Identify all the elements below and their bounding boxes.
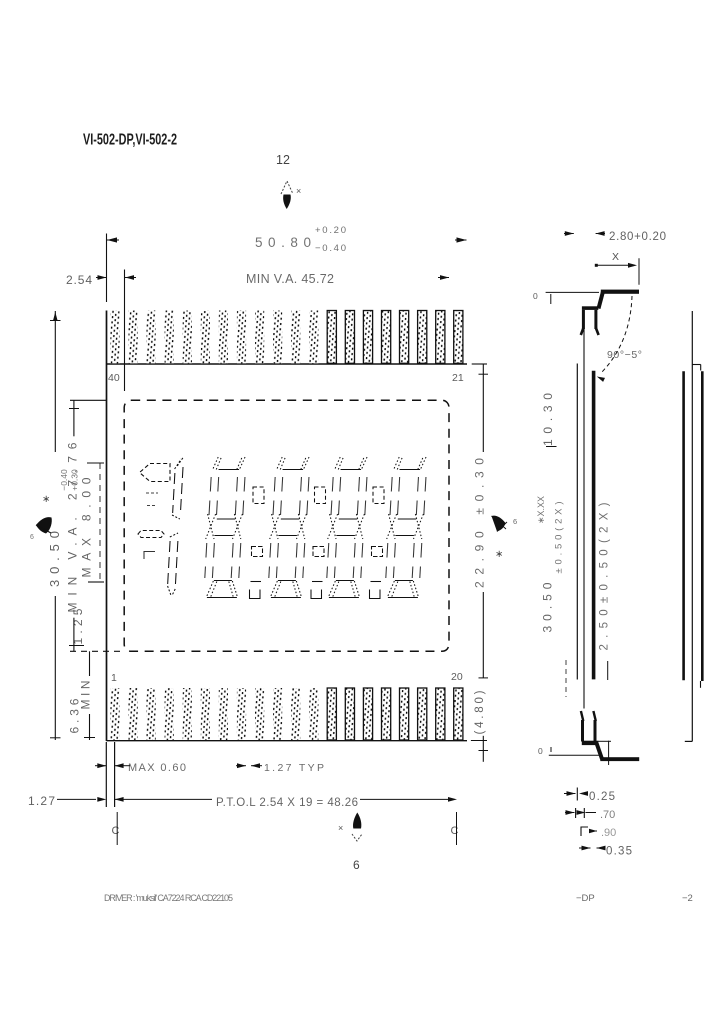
svg-text:+0.20: +0.20: [315, 225, 346, 236]
svg-text:2.54: 2.54: [66, 273, 92, 287]
svg-text:6.36: 6.36: [68, 698, 82, 733]
svg-text:MIN V.A. 45.72: MIN V.A. 45.72: [246, 272, 334, 286]
svg-text:0.35: 0.35: [606, 846, 632, 858]
svg-text:10.30: 10.30: [541, 393, 555, 446]
svg-text:−DP: −DP: [576, 893, 595, 904]
svg-text:1.25: 1.25: [71, 608, 85, 644]
svg-text:C: C: [112, 825, 120, 837]
svg-text:40: 40: [108, 372, 120, 384]
svg-text:1: 1: [111, 672, 117, 684]
svg-text:X: X: [612, 251, 619, 263]
svg-text:P.T.O.L 2.54 X 19 = 48.26: P.T.O.L 2.54 X 19 = 48.26: [216, 797, 358, 809]
svg-text:0: 0: [538, 746, 543, 756]
svg-text:MAX 0.60: MAX 0.60: [128, 762, 186, 774]
svg-text:0.25: 0.25: [589, 791, 615, 803]
svg-text:2.50±0.50(2X): 2.50±0.50(2X): [599, 502, 611, 650]
svg-text:C: C: [451, 825, 459, 837]
svg-text:30.50: 30.50: [47, 531, 62, 587]
svg-text:MIN V.A. 27.76: MIN V.A. 27.76: [66, 442, 80, 612]
svg-text:MAX 8.00: MAX 8.00: [80, 477, 94, 577]
svg-text:0: 0: [533, 291, 538, 301]
svg-text:6: 6: [30, 534, 34, 541]
svg-text:1.27: 1.27: [28, 794, 55, 808]
svg-text:∗: ∗: [495, 549, 503, 560]
svg-text:DRIVER : 'muksil' CA7224 RCA: DRIVER : 'muksil' CA7224 RCA CD22105: [104, 893, 233, 903]
svg-text:.90: .90: [601, 827, 616, 839]
svg-text:×: ×: [296, 186, 301, 196]
svg-text:−0.40: −0.40: [315, 243, 346, 254]
svg-text:±0.50(2X): ±0.50(2X): [554, 502, 565, 574]
svg-text:30.50: 30.50: [541, 582, 555, 632]
svg-text:6: 6: [513, 517, 517, 526]
svg-text:∗: ∗: [42, 494, 50, 505]
svg-text:VI-502-DP,VI-502-2: VI-502-DP,VI-502-2: [83, 132, 177, 149]
svg-text:1.27 TYP: 1.27 TYP: [264, 762, 324, 774]
svg-text:.70: .70: [600, 809, 615, 821]
svg-text:20: 20: [451, 671, 463, 683]
svg-text:21: 21: [452, 372, 464, 384]
svg-text:2.80+0.20: 2.80+0.20: [609, 231, 666, 243]
svg-text:22.90 ±0.30: 22.90 ±0.30: [473, 458, 487, 588]
svg-text:(4.80): (4.80): [474, 690, 486, 734]
svg-text:−2: −2: [682, 893, 693, 904]
svg-text:×: ×: [338, 823, 343, 833]
svg-text:∗X.XX: ∗X.XX: [536, 496, 546, 524]
svg-text:50.80: 50.80: [255, 235, 311, 250]
svg-text:12: 12: [276, 153, 290, 167]
svg-text:6: 6: [353, 858, 360, 872]
